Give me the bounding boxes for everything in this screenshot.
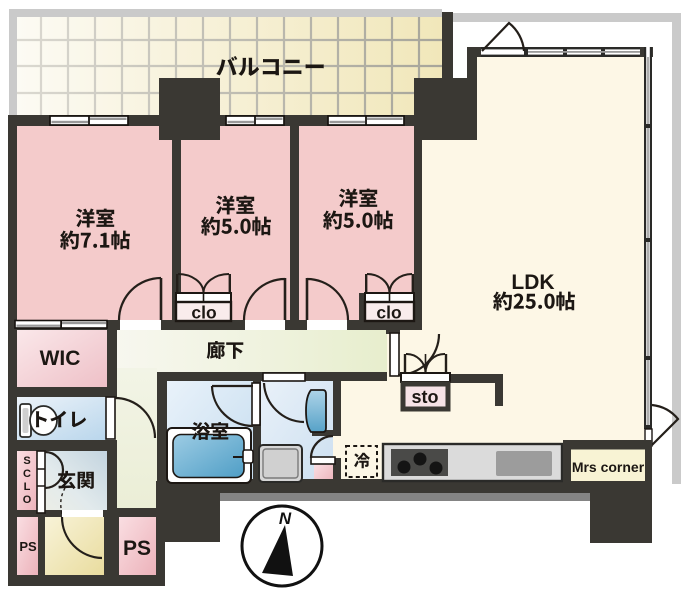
svg-text:L: L [24, 481, 31, 493]
svg-text:C: C [23, 468, 31, 480]
svg-text:LDK: LDK [511, 271, 554, 294]
svg-text:clo: clo [376, 303, 401, 323]
svg-text:PS: PS [19, 539, 37, 554]
svg-text:WIC: WIC [40, 347, 81, 370]
svg-text:sto: sto [412, 387, 439, 407]
svg-text:S: S [23, 455, 30, 467]
svg-text:O: O [23, 494, 32, 506]
svg-text:Mrs corner: Mrs corner [572, 459, 645, 475]
svg-text:PS: PS [123, 537, 151, 560]
svg-text:N: N [279, 509, 292, 528]
svg-text:clo: clo [191, 303, 216, 323]
